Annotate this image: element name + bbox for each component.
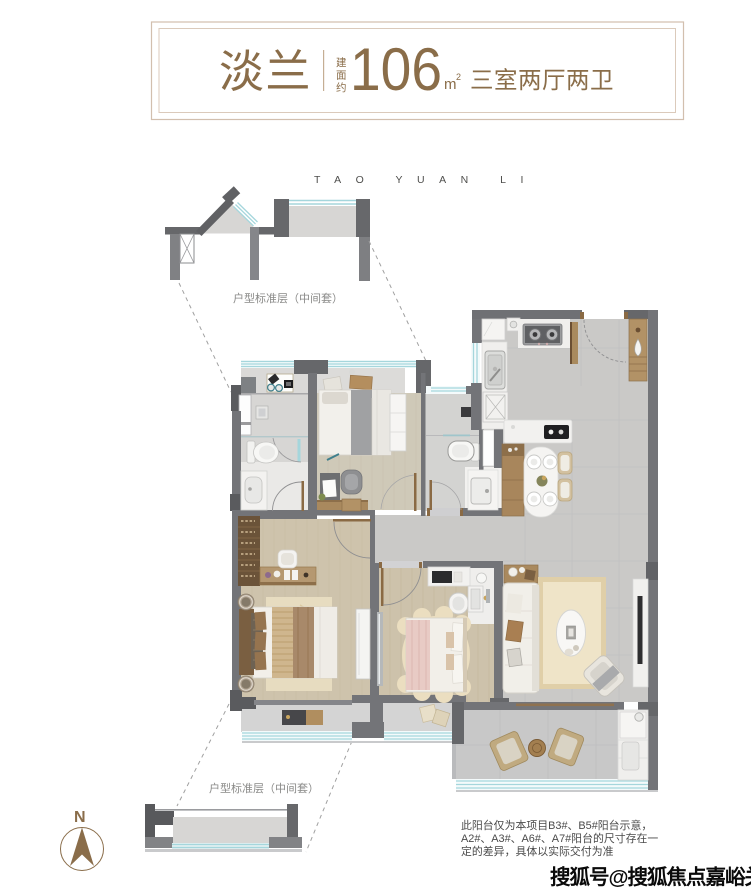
svg-text:建: 建 <box>336 56 347 69</box>
svg-text:三室两厅两卫: 三室两厅两卫 <box>470 67 614 93</box>
svg-text:TAO YUAN LI: TAO YUAN LI <box>314 174 538 186</box>
svg-text:此阳台仅为本项目B3#、B5#阳台示意，: 此阳台仅为本项目B3#、B5#阳台示意， <box>461 818 652 832</box>
svg-text:户型标准层（中间套）: 户型标准层（中间套） <box>209 781 319 795</box>
svg-text:A2#、A3#、A6#、A7#阳台的尺寸存在一: A2#、A3#、A6#、A7#阳台的尺寸存在一 <box>461 831 658 845</box>
svg-text:N: N <box>74 809 86 826</box>
svg-text:2: 2 <box>456 72 461 82</box>
svg-text:面: 面 <box>336 70 347 82</box>
svg-text:约: 约 <box>336 81 347 94</box>
svg-text:m: m <box>444 76 457 93</box>
svg-text:搜狐号@搜狐焦点嘉峪关站: 搜狐号@搜狐焦点嘉峪关站 <box>550 865 751 889</box>
svg-text:户型标准层（中间套）: 户型标准层（中间套） <box>233 291 343 305</box>
svg-text:106: 106 <box>350 36 442 103</box>
svg-text:定的差异，具体以实际交付为准: 定的差异，具体以实际交付为准 <box>461 844 614 858</box>
svg-text:淡兰: 淡兰 <box>219 47 312 97</box>
